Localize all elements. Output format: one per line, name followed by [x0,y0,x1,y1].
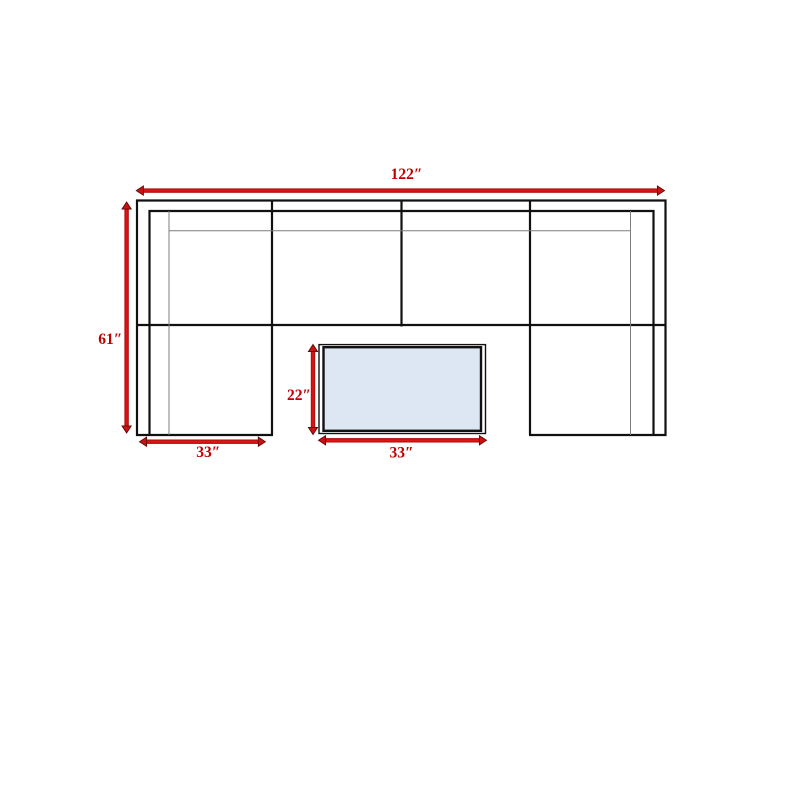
svg-text:122″: 122″ [391,166,423,183]
svg-text:33″: 33″ [389,445,413,462]
svg-text:33″: 33″ [196,444,220,461]
svg-text:61″: 61″ [98,331,122,348]
svg-text:22″: 22″ [287,387,311,404]
